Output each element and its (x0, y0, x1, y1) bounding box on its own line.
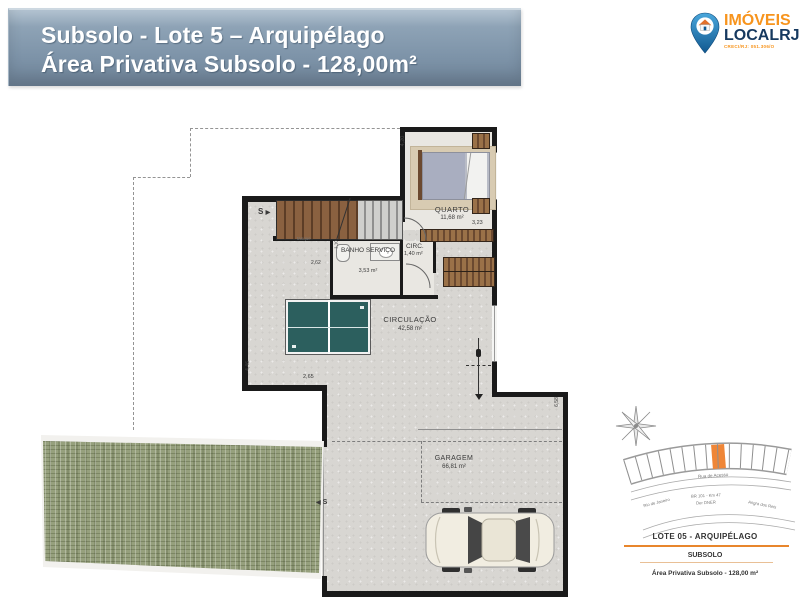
projection-dash-h2 (133, 177, 190, 178)
projection-dash-top (190, 128, 405, 129)
stairs-up-arrow-icon: ▶ (266, 210, 271, 216)
minimap-lot-title: LOTE 05 - ARQUIPÉLAGO (610, 533, 800, 542)
creci-number: CRECI/RJ: 051.306/O (724, 45, 800, 50)
driveway-pavers (40, 432, 332, 582)
stairs-concrete (358, 200, 403, 240)
highway-label-2: Der DNER (696, 499, 716, 505)
level-marker-cross (466, 365, 491, 366)
wall-circulacao-bottom (242, 385, 327, 391)
brand-name-bottom: LOCALRJ (724, 27, 800, 45)
nightstand-top (472, 133, 490, 149)
dim-banho-width: 1,10 (334, 230, 339, 260)
dim-banho-height: 2,62 (311, 261, 321, 267)
title-banner: Subsolo - Lote 5 – Arquipélago Área Priv… (8, 8, 521, 86)
circulacao-area: 42,58 m² (386, 326, 434, 333)
dim-quarto-width: 3,23 (472, 220, 483, 226)
entry-marker: ◀ S (316, 499, 327, 507)
floor-plan-page: Subsolo - Lote 5 – Arquipélago Área Priv… (0, 0, 800, 600)
dim-quarto-height: 4,20 (400, 126, 406, 156)
wall-bottom (322, 591, 568, 597)
quarto-label: QUARTO (428, 206, 476, 214)
quarto-area: 11,68 m² (430, 215, 474, 222)
dim-garagem-right: 6,58 (554, 387, 560, 417)
garage-top-line (418, 429, 562, 430)
ping-pong-table (286, 300, 370, 354)
level-marker-arrow-icon (475, 394, 483, 400)
minimap-area-caption: Área Privativa Subsolo - 128,00 m² (610, 570, 800, 577)
projection-dash-v1 (190, 128, 191, 177)
dim-circulacao-bottom: 2,65 (303, 374, 314, 380)
lots-strip-map (615, 430, 800, 540)
wall-right-lower (563, 392, 568, 597)
location-minimap: Rua de Acesso Rio de Janeiro BR 101 - Km… (610, 400, 800, 590)
minimap-floor-label: SUBSOLO (610, 552, 800, 560)
garage-dash-1 (332, 441, 562, 442)
service-note: tanque (297, 237, 311, 242)
garage-dash-2 (421, 502, 562, 503)
banho-label: BANHO SERVIÇO (340, 247, 396, 254)
minimap-divider-1 (624, 545, 789, 547)
paddle-icon (292, 345, 296, 348)
garagem-area: 66,81 m² (434, 464, 474, 471)
stairs-up-marker: S ▶ (258, 208, 270, 217)
entry-letter: S (323, 499, 328, 506)
sideboard-cabinet (443, 257, 495, 287)
banner-title-line2: Área Privativa Subsolo - 128,00m² (41, 50, 521, 79)
entry-arrow-icon: ◀ (316, 500, 321, 506)
level-marker-knot (476, 349, 481, 357)
banho-area: 3,53 m² (346, 268, 390, 274)
car-top-view (420, 505, 560, 575)
paddle-icon (360, 306, 364, 309)
circulacao-window (492, 305, 497, 362)
company-logo: IMÓVEIS LOCALRJ CRECI/RJ: 051.306/O (690, 12, 800, 59)
wall-quarto-top (400, 127, 497, 132)
dim-circulacao-left: 4,46 (245, 351, 251, 381)
wall-banho-bottom (330, 295, 438, 299)
garagem-label: GARAGEM (430, 455, 478, 463)
level-marker-line (478, 338, 479, 398)
stairs-up-letter: S (258, 207, 263, 216)
banner-title-line1: Subsolo - Lote 5 – Arquipélago (41, 21, 521, 50)
minimap-divider-2 (640, 562, 773, 563)
circulacao-label: CIRCULAÇÃO (378, 316, 442, 324)
map-pin-house-icon (690, 12, 720, 59)
circ-area: 1,40 m² (404, 251, 423, 257)
projection-dash-v2 (133, 177, 134, 430)
garage-dash-v (421, 441, 422, 502)
circ-label: CIRC. (406, 243, 424, 250)
bed (422, 152, 490, 200)
